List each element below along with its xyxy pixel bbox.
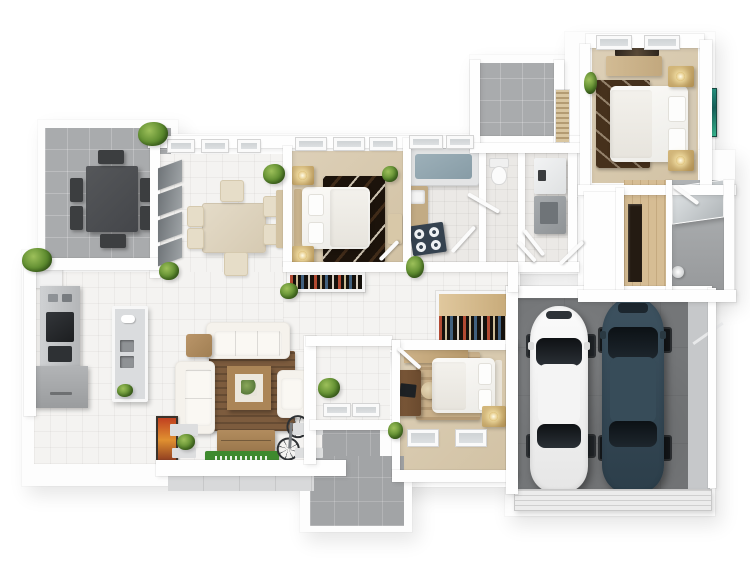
outdoor-chair <box>70 206 83 230</box>
bathtub <box>409 148 480 186</box>
garage-door <box>514 489 712 511</box>
bed-pillow <box>478 363 492 385</box>
hallway-wardrobe <box>436 291 510 343</box>
bedroom3-nightstand <box>482 406 506 427</box>
window <box>296 138 326 150</box>
potted-plant <box>117 384 133 397</box>
bed-headboard <box>294 189 302 247</box>
dining-chair <box>220 180 244 202</box>
bedroom2-bench <box>388 214 402 244</box>
car-roof <box>610 357 656 423</box>
sofa-three-seat <box>206 322 290 359</box>
outdoor-chair <box>100 234 126 248</box>
kitchen-appliance-tower <box>40 286 80 378</box>
console-groove <box>221 440 271 441</box>
wall <box>580 44 590 186</box>
wall <box>700 40 712 190</box>
wardrobe-clothes <box>439 316 507 340</box>
potted-plant <box>388 422 403 439</box>
cabinet-handle <box>538 170 546 181</box>
burner <box>415 241 426 252</box>
pantry-cabinet <box>534 158 566 194</box>
car-teal <box>600 297 666 493</box>
desk-monitor <box>399 383 416 398</box>
bedroom2-bed <box>294 186 372 250</box>
lamp <box>298 171 307 180</box>
wall <box>508 262 518 292</box>
fridge-panel <box>540 202 558 224</box>
wall <box>403 138 411 266</box>
potted-plant <box>22 248 52 272</box>
car-mirror <box>528 342 534 350</box>
car-rear-window <box>609 421 657 447</box>
small-appliance <box>62 294 72 302</box>
wall <box>283 146 292 266</box>
potted-plant <box>584 72 597 94</box>
lamp <box>298 251 307 260</box>
wall <box>392 340 400 478</box>
bathroom-sink <box>410 190 425 204</box>
potted-plant <box>280 283 298 299</box>
potted-plant <box>263 164 285 184</box>
toilet-bowl <box>491 166 507 185</box>
burner <box>428 226 439 237</box>
island-sink <box>120 356 134 368</box>
paper-towel <box>121 315 135 323</box>
car-windshield <box>536 338 582 366</box>
bedroom3-bed <box>432 358 502 413</box>
lamp <box>489 412 498 421</box>
refrigerator <box>534 196 566 234</box>
car-mirror <box>660 331 666 339</box>
window <box>334 138 364 150</box>
tv-console <box>217 430 275 452</box>
bathroom-vanity <box>408 186 428 226</box>
bedroom2-nightstand <box>292 166 314 185</box>
drawer-handle <box>50 392 72 395</box>
garage-side-strip <box>688 296 710 489</box>
master-dresser <box>606 56 662 76</box>
window <box>410 136 442 148</box>
floor-plan-render <box>0 0 750 563</box>
car-rear-window <box>537 424 581 448</box>
wall <box>283 262 579 272</box>
small-appliance <box>48 294 58 302</box>
master-nightstand <box>668 66 694 87</box>
wall <box>506 286 518 494</box>
wall <box>156 460 346 476</box>
oven <box>46 312 74 342</box>
potted-plant <box>406 256 424 278</box>
island-sink <box>120 340 134 352</box>
car-windshield <box>608 327 658 359</box>
wall <box>310 420 392 430</box>
wall <box>306 336 392 346</box>
side-table <box>186 334 212 357</box>
wall <box>708 288 716 488</box>
wall <box>616 188 624 296</box>
dining-table <box>202 203 266 253</box>
car-white <box>528 306 590 492</box>
window <box>645 36 679 49</box>
bed-blanket <box>610 90 652 158</box>
closet-floor-opening <box>628 204 642 282</box>
dining-chair <box>224 252 248 276</box>
master-nightstand <box>668 150 694 171</box>
microwave <box>48 346 72 362</box>
car-roof <box>538 364 580 424</box>
dining-chair <box>187 206 204 227</box>
lamp <box>676 72 685 81</box>
wall <box>24 268 36 416</box>
kitchen-counter <box>34 366 88 408</box>
potted-plant <box>138 122 168 146</box>
floor-fixture <box>672 266 684 278</box>
wall <box>724 180 734 294</box>
wall <box>304 336 316 464</box>
front-steps <box>168 476 314 491</box>
bed-headboard <box>495 360 502 411</box>
louver-window <box>556 90 569 142</box>
bed-pillow <box>308 194 324 216</box>
bedroom3-floor-window <box>408 430 438 446</box>
window <box>370 138 396 150</box>
wall <box>666 180 672 294</box>
potted-plant <box>159 262 179 280</box>
bedroom2-wardrobe-shelf <box>287 272 365 292</box>
car-sunroof <box>618 303 648 313</box>
porch-floor-panel <box>324 404 350 416</box>
window <box>202 140 228 152</box>
outdoor-chair <box>70 178 83 202</box>
wall <box>578 290 736 302</box>
window <box>168 140 194 152</box>
potted-plant <box>318 378 340 398</box>
car-mirror <box>600 331 606 339</box>
bed-blanket <box>432 362 466 410</box>
bedroom3-desk <box>397 370 421 416</box>
lamp <box>676 156 685 165</box>
wall <box>392 340 518 350</box>
window <box>238 140 260 152</box>
bed-pillow <box>308 222 324 244</box>
car-mirror <box>584 342 590 350</box>
bedroom3-floor-window <box>456 430 486 446</box>
dining-chair <box>187 228 204 249</box>
toilet <box>489 158 507 184</box>
burner <box>414 229 425 240</box>
sofa-cushions <box>185 369 212 426</box>
outdoor-chair <box>98 150 124 164</box>
bed-pillow <box>668 96 686 122</box>
wall <box>584 192 618 292</box>
upper-terrace-floor <box>478 63 556 145</box>
outdoor-dining-table <box>86 166 138 232</box>
porch-floor-panel <box>353 404 379 416</box>
window <box>447 136 473 148</box>
wardrobe-wood-top <box>439 294 507 316</box>
car-sunroof <box>546 311 572 319</box>
sofa-cushions <box>214 331 282 356</box>
wall <box>392 470 516 482</box>
armchair-cushion <box>281 378 303 410</box>
table-decor <box>241 380 257 396</box>
window <box>597 36 631 49</box>
burner <box>430 239 441 250</box>
potted-plant <box>177 434 195 450</box>
wall <box>470 143 580 153</box>
bed-blanket <box>330 189 368 247</box>
coffee-table <box>227 366 271 410</box>
potted-plant <box>382 166 398 182</box>
bathtub-water <box>415 154 472 179</box>
four-burner-appliance <box>409 222 447 256</box>
